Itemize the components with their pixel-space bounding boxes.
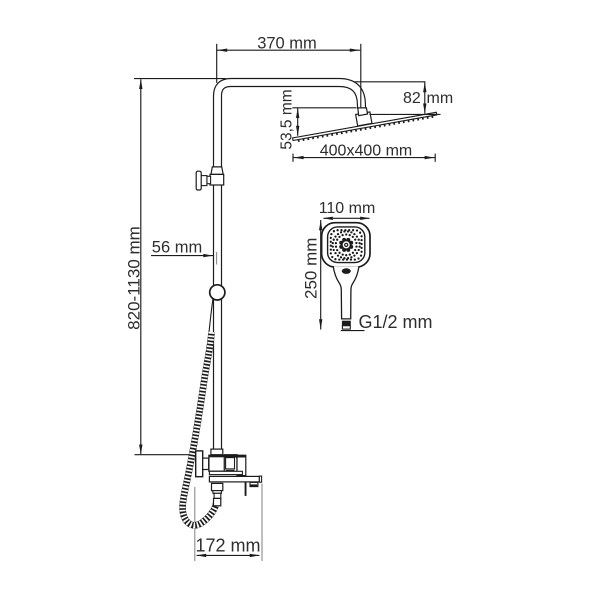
svg-text:82: 82 <box>403 90 421 107</box>
svg-text:400x400 mm: 400x400 mm <box>320 142 413 159</box>
svg-text:820-1130 mm: 820-1130 mm <box>124 226 143 330</box>
svg-text:53,5 mm: 53,5 mm <box>279 89 296 149</box>
svg-text:mm: mm <box>427 90 454 107</box>
svg-text:110 mm: 110 mm <box>319 200 376 217</box>
svg-text:56 mm: 56 mm <box>152 238 202 256</box>
svg-text:172 mm: 172 mm <box>195 536 260 556</box>
svg-text:370 mm: 370 mm <box>257 35 317 53</box>
svg-text:250 mm: 250 mm <box>302 238 321 299</box>
svg-text:G1/2 mm: G1/2 mm <box>359 312 433 332</box>
